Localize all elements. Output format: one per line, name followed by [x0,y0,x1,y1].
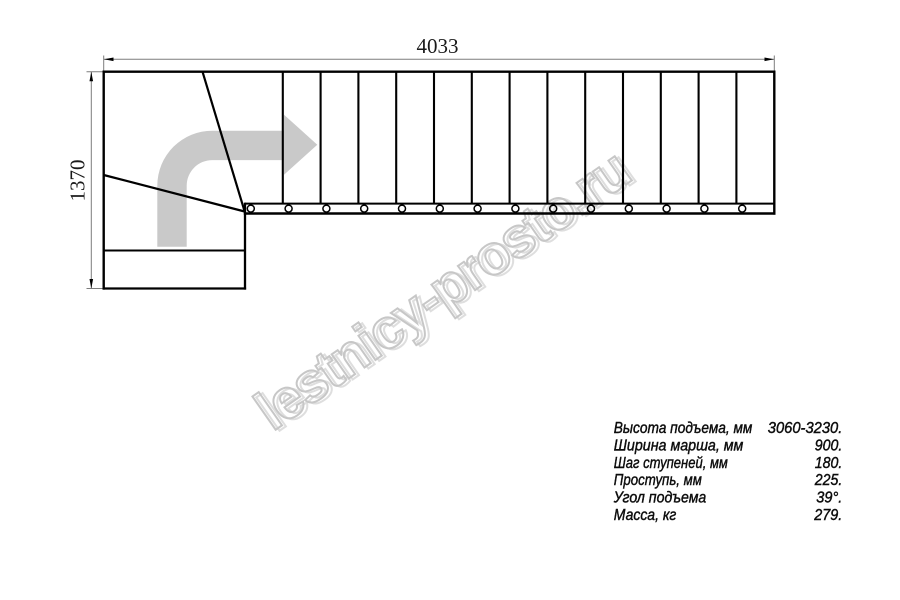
svg-text:Угол подъема: Угол подъема [613,490,706,507]
svg-text:180.: 180. [815,455,843,472]
svg-text:225.: 225. [814,472,842,489]
svg-text:Шаг ступеней, мм: Шаг ступеней, мм [614,455,728,472]
svg-text:900.: 900. [815,438,843,455]
svg-text:3060-3230.: 3060-3230. [768,420,843,437]
svg-text:Проступь, мм: Проступь, мм [614,472,702,489]
svg-text:39°.: 39°. [816,490,842,507]
svg-text:279.: 279. [813,507,842,524]
svg-text:Ширина марша, мм: Ширина марша, мм [614,438,744,455]
svg-text:Высота подъема, мм: Высота подъема, мм [614,420,753,437]
svg-text:4033: 4033 [417,34,459,58]
svg-text:1370: 1370 [65,160,89,202]
svg-text:Масса, кг: Масса, кг [614,507,677,524]
